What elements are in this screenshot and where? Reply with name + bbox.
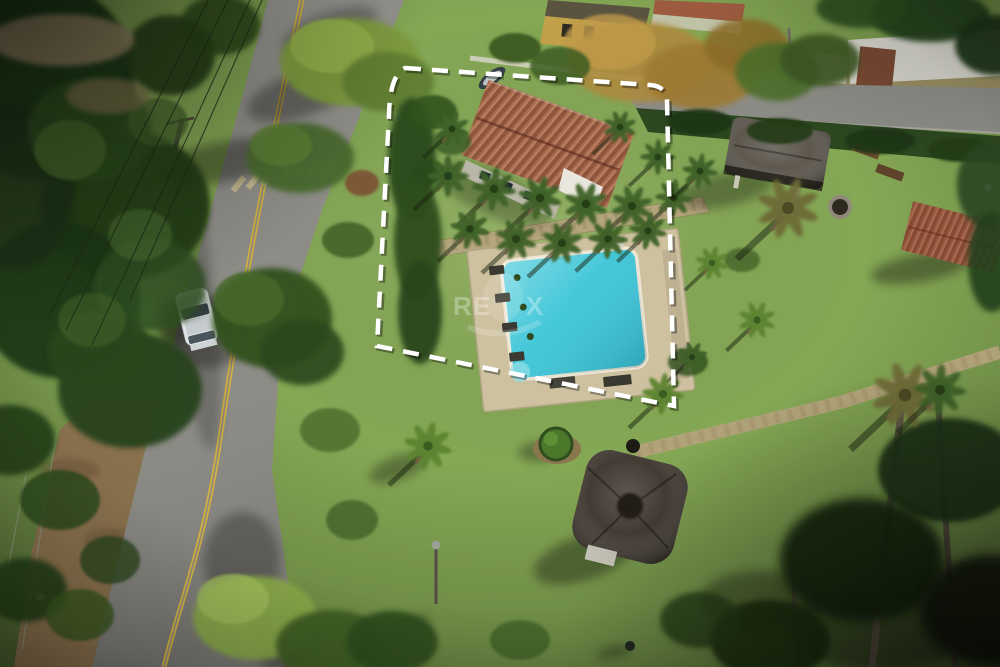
watermark-text-right: X xyxy=(526,291,544,321)
watermark-text-left: RE xyxy=(453,291,491,321)
scene: RE X xyxy=(0,0,1000,667)
aerial-property-photo: RE X xyxy=(0,0,1000,667)
